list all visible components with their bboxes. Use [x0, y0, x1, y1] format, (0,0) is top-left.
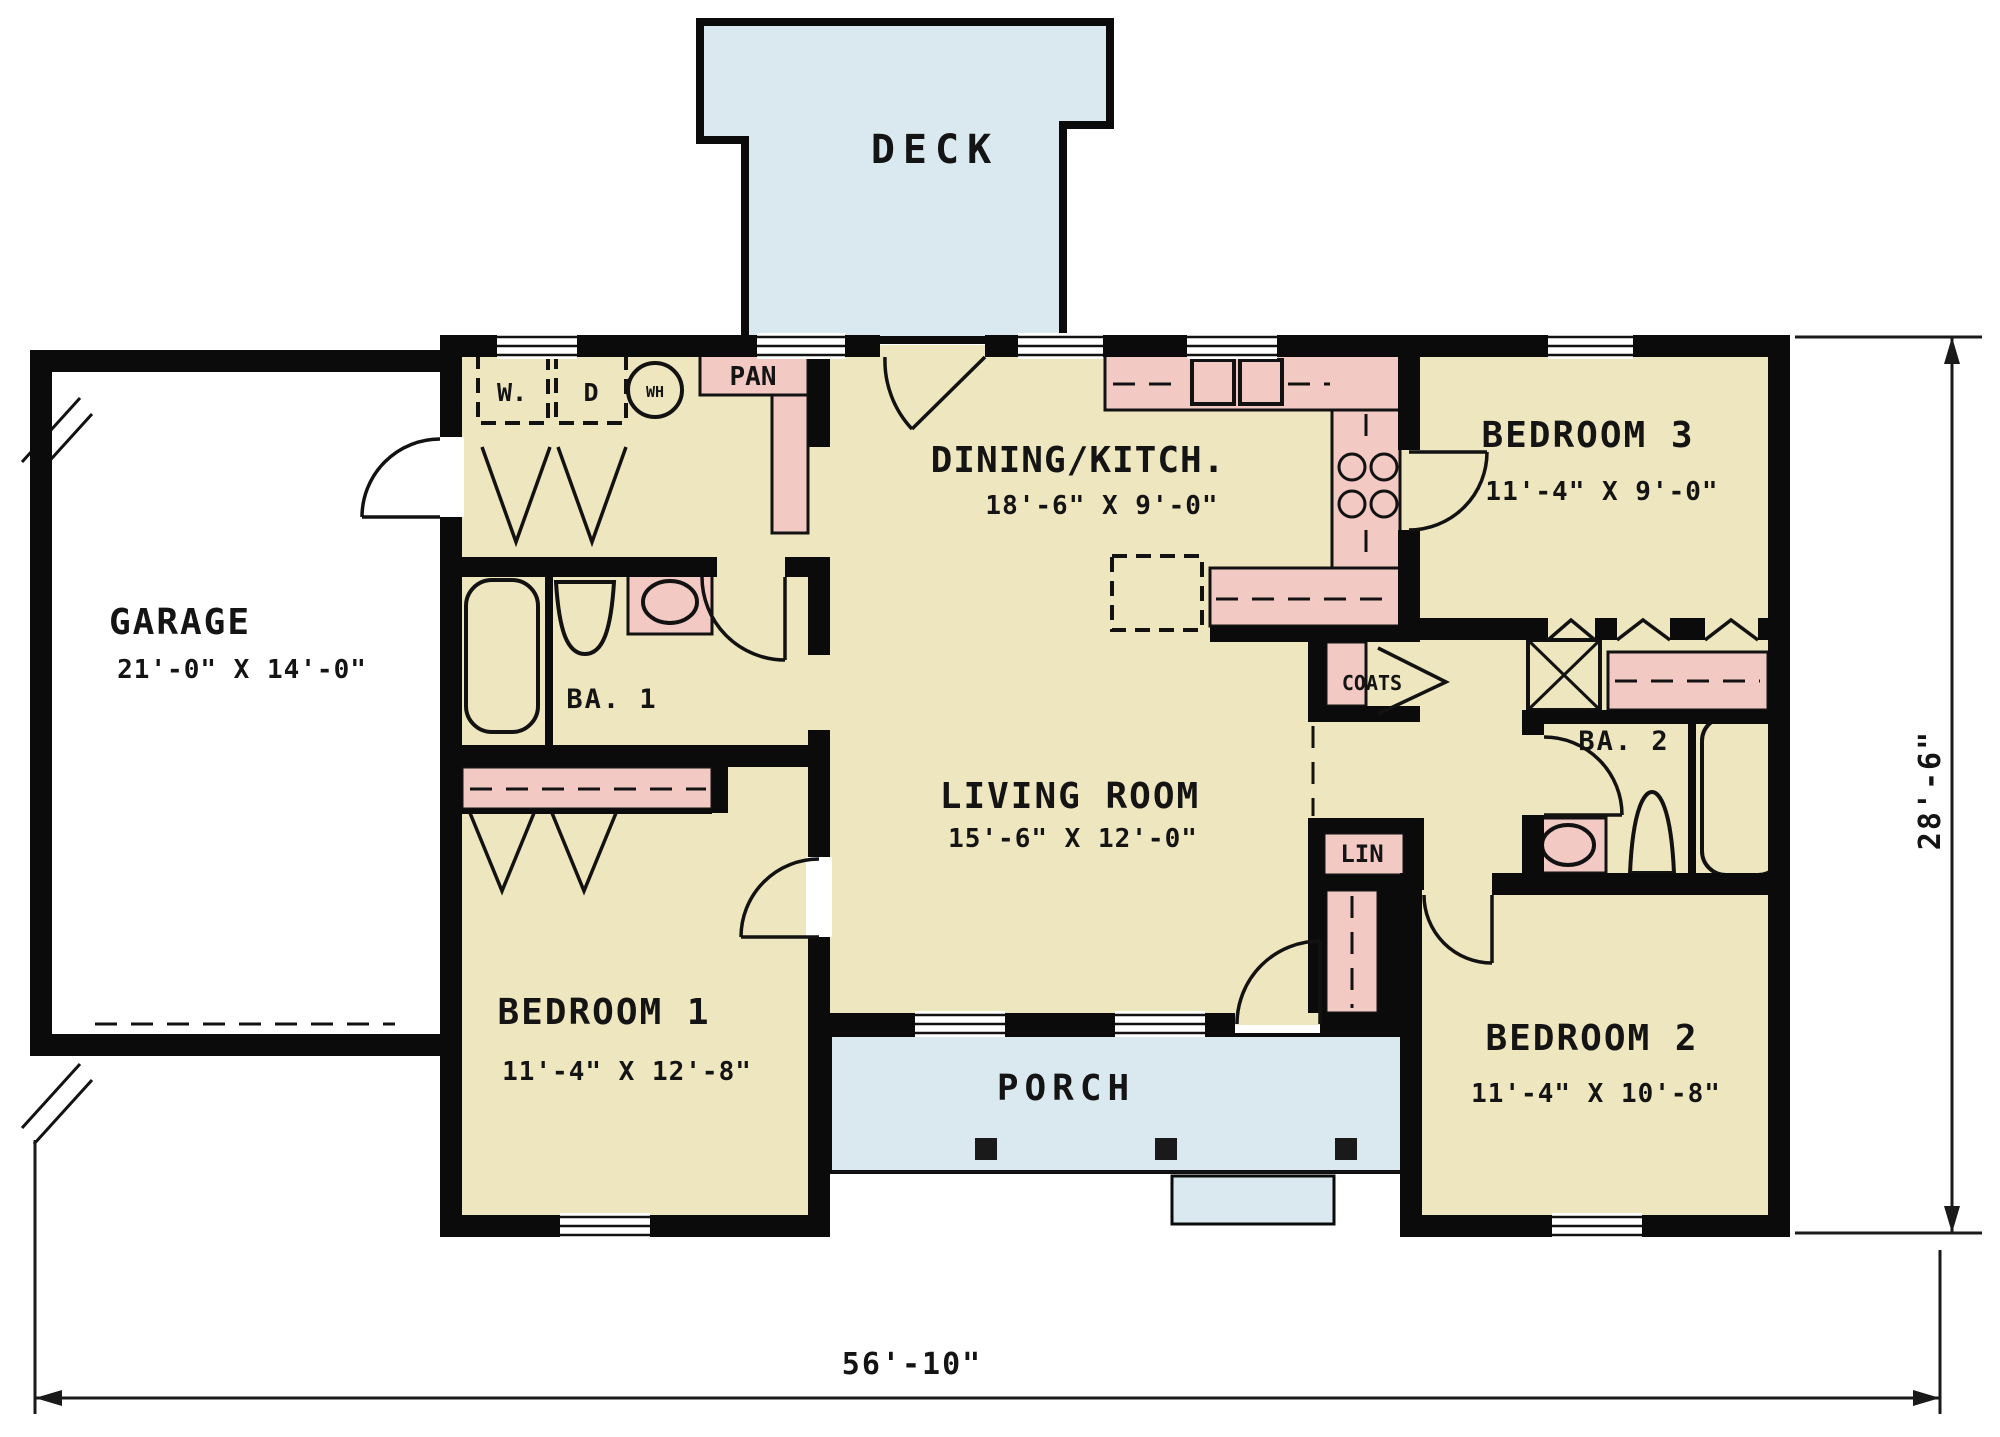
window-icon	[1548, 333, 1633, 359]
window-icon	[1552, 1213, 1642, 1239]
wall-segment	[650, 1215, 830, 1237]
dryer-label: D	[583, 378, 598, 407]
wall-segment	[1400, 873, 1422, 1237]
window-icon	[1115, 1011, 1205, 1037]
wall-segment	[30, 350, 52, 1056]
porch-post	[1335, 1138, 1357, 1160]
wall-segment	[1308, 890, 1326, 1013]
wall-segment	[462, 745, 808, 767]
wall-segment	[808, 557, 830, 655]
wall-segment	[1688, 724, 1696, 874]
porch-post	[1155, 1138, 1177, 1160]
wall-segment	[808, 730, 830, 857]
wall-segment	[1005, 1013, 1115, 1035]
window-icon	[757, 333, 845, 359]
door-gap	[438, 437, 464, 517]
wall-segment	[1378, 890, 1400, 1013]
wall-segment	[1522, 710, 1790, 724]
coats-closet-label: COATS	[1342, 671, 1402, 695]
wall-segment	[1768, 335, 1790, 1237]
arrowhead-icon	[1944, 1206, 1960, 1233]
window-icon	[560, 1213, 650, 1239]
wall-segment	[1595, 618, 1617, 640]
wall-segment	[30, 350, 440, 372]
bedroom1-dims: 11'-4" X 12'-8"	[502, 1057, 752, 1087]
wall-segment	[985, 335, 1018, 357]
bedroom3-dims: 11'-4" X 9'-0"	[1485, 477, 1718, 507]
linen-closet-label: LIN	[1340, 840, 1383, 868]
wall-segment	[462, 809, 712, 814]
window-icon	[497, 333, 577, 359]
arrowhead-icon	[1944, 337, 1960, 364]
wall-segment	[577, 335, 757, 357]
wall-segment	[1642, 1215, 1790, 1237]
porch-post	[975, 1138, 997, 1160]
bedroom2-label: BEDROOM 2	[1485, 1018, 1698, 1059]
wall-segment	[30, 1034, 440, 1056]
wall-segment	[1492, 873, 1790, 895]
wall-segment	[845, 335, 880, 357]
wall-segment	[1398, 335, 1420, 450]
wall-segment	[462, 557, 717, 577]
wall-segment	[1522, 815, 1544, 873]
wall-segment	[785, 557, 808, 577]
living-room-label: LIVING ROOM	[940, 776, 1200, 817]
kitchen-counter-bottom	[1210, 568, 1400, 626]
floor-plan-drawing: 56'-10" 28'-6" DECK GARAGE 21'-0" X 14'-…	[0, 0, 2000, 1437]
door-swing-garage	[362, 439, 440, 517]
water-heater-label: WH	[646, 383, 664, 401]
dining-kitchen-dims: 18'-6" X 9'-0"	[985, 491, 1218, 521]
wall-segment	[1398, 618, 1548, 640]
pantry-shelf-side	[772, 395, 808, 533]
window-icon	[915, 1011, 1005, 1037]
bedroom1-label: BEDROOM 1	[497, 992, 710, 1033]
arrowhead-icon	[35, 1390, 62, 1406]
dining-kitchen-label: DINING/KITCH.	[931, 440, 1226, 481]
wall-segment	[712, 767, 728, 813]
pantry-label: PAN	[730, 362, 777, 392]
garage-dims: 21'-0" X 14'-0"	[117, 655, 367, 685]
window-icon	[1187, 333, 1277, 359]
wall-segment	[1670, 618, 1705, 640]
wall-segment	[1400, 1215, 1552, 1237]
garage-label: GARAGE	[109, 602, 251, 643]
wall-segment	[1205, 1013, 1235, 1035]
floor-plan-sheet: 56'-10" 28'-6" DECK GARAGE 21'-0" X 14'-…	[0, 0, 2000, 1437]
overall-width-dimension: 56'-10"	[842, 1347, 982, 1382]
door-gap	[806, 857, 832, 937]
overall-depth-dimension: 28'-6"	[1913, 730, 1948, 850]
bedroom2-dims: 11'-4" X 10'-8"	[1471, 1079, 1721, 1109]
wall-break-mark	[22, 1064, 80, 1128]
bath1-label: BA. 1	[566, 684, 657, 715]
wall-segment	[1308, 818, 1324, 890]
deck-label: DECK	[871, 127, 999, 173]
window-icon	[1018, 333, 1103, 359]
arrowhead-icon	[1913, 1390, 1940, 1406]
wall-segment	[545, 577, 553, 745]
deck-floor	[700, 22, 1110, 340]
wall-segment	[1210, 626, 1400, 642]
wall-segment	[830, 1013, 915, 1035]
wall-segment	[1758, 618, 1790, 640]
wall-segment	[1522, 710, 1544, 735]
wall-segment	[1103, 335, 1187, 357]
living-room-dims: 15'-6" X 12'-0"	[948, 824, 1198, 854]
wall-segment	[1633, 335, 1790, 357]
bath2-label: BA. 2	[1578, 726, 1669, 757]
porch-label: PORCH	[997, 1068, 1135, 1109]
washer-label: W.	[497, 378, 527, 407]
wall-segment	[1404, 818, 1424, 890]
bedroom3-label: BEDROOM 3	[1481, 415, 1694, 456]
wall-break-mark	[34, 1080, 92, 1144]
wall-segment	[440, 1215, 560, 1237]
wall-segment	[808, 937, 830, 1237]
porch-step	[1172, 1176, 1334, 1224]
